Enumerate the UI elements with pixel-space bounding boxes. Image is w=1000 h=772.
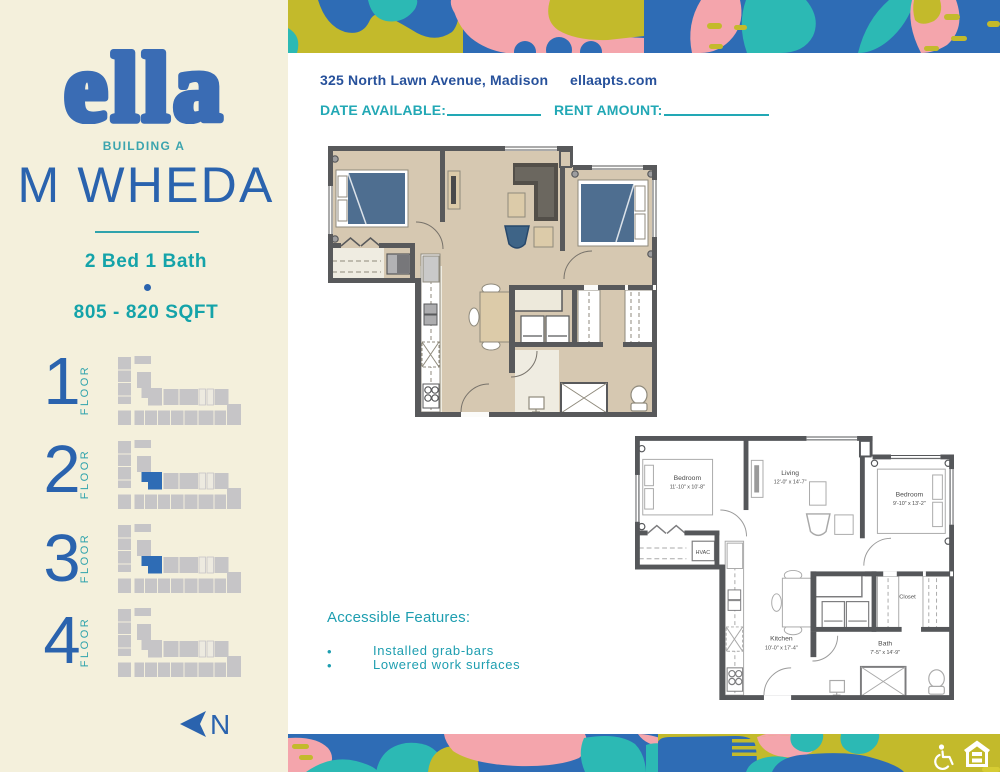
svg-text:ella: ella <box>64 42 225 124</box>
svg-text:N: N <box>210 709 230 740</box>
